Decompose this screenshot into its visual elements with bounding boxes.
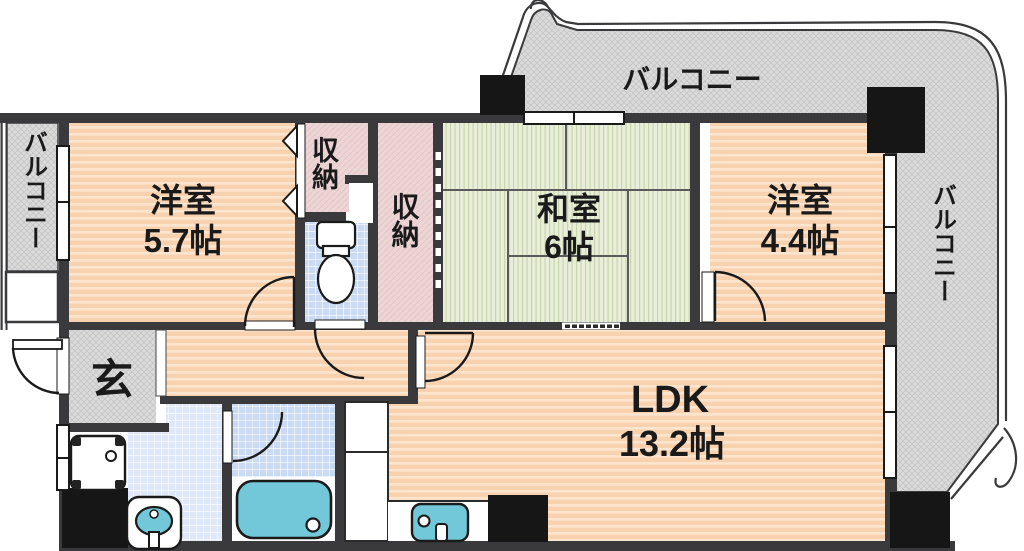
pillar-bottom-center bbox=[488, 495, 548, 542]
label-ldk-size: 13.2帖 bbox=[619, 423, 725, 464]
sliding-door-closet-2 bbox=[435, 148, 442, 296]
bathtub bbox=[237, 481, 331, 538]
bathroom-floor bbox=[232, 404, 335, 477]
floorplan-canvas: バルコニー バルコニー バルコニー 洋室 5.7帖 収納 収納 和室 6帖 洋室… bbox=[0, 0, 1024, 551]
label-storage-2: 収納 bbox=[389, 192, 420, 248]
western1-door-opening bbox=[245, 321, 295, 330]
label-balcony-left: バルコニー bbox=[20, 130, 47, 250]
window-western-4-4-right bbox=[884, 155, 896, 293]
label-entrance: 玄 bbox=[91, 356, 133, 403]
balcony-rail-curl-bottom bbox=[995, 428, 1016, 487]
entrance-door-leaf bbox=[13, 340, 62, 349]
label-balcony-right: バルコニー bbox=[929, 183, 956, 303]
label-japanese-size: 6帖 bbox=[544, 229, 594, 265]
kitchen-sink bbox=[412, 504, 468, 541]
wash-basin bbox=[127, 497, 181, 549]
label-western1-size: 5.7帖 bbox=[144, 222, 223, 259]
label-balcony-top: バルコニー bbox=[622, 64, 761, 95]
pillar-top-center bbox=[480, 75, 525, 115]
toilet-door-opening bbox=[315, 320, 365, 329]
bath-door-leaf bbox=[223, 411, 232, 463]
label-western2-size: 4.4帖 bbox=[761, 222, 840, 259]
toilet-fixture bbox=[317, 222, 355, 303]
entrance-step bbox=[156, 330, 166, 396]
entrance-door-arc bbox=[13, 348, 59, 393]
meter-box bbox=[6, 272, 58, 322]
closet-1-opening bbox=[349, 183, 373, 223]
western2-door-opening bbox=[702, 272, 714, 322]
pillar-top-right bbox=[867, 87, 925, 153]
pillar-bottom-right bbox=[890, 492, 950, 548]
floorplan-svg: バルコニー バルコニー バルコニー 洋室 5.7帖 収納 収納 和室 6帖 洋室… bbox=[0, 0, 1024, 551]
balcony-left-outer-rail-1 bbox=[1, 113, 3, 330]
label-western1-name: 洋室 bbox=[150, 182, 216, 219]
washing-machine bbox=[71, 436, 125, 490]
label-ldk-name: LDK bbox=[631, 379, 710, 421]
sliding-door-japanese-ldk bbox=[562, 323, 620, 330]
corridor-floor bbox=[166, 330, 408, 396]
ldk-door-leaf bbox=[416, 336, 425, 388]
pillar-bottom-left bbox=[62, 488, 128, 548]
label-japanese-name: 和室 bbox=[537, 191, 601, 227]
label-western2-name: 洋室 bbox=[767, 182, 833, 219]
label-storage-1: 収納 bbox=[308, 136, 339, 190]
